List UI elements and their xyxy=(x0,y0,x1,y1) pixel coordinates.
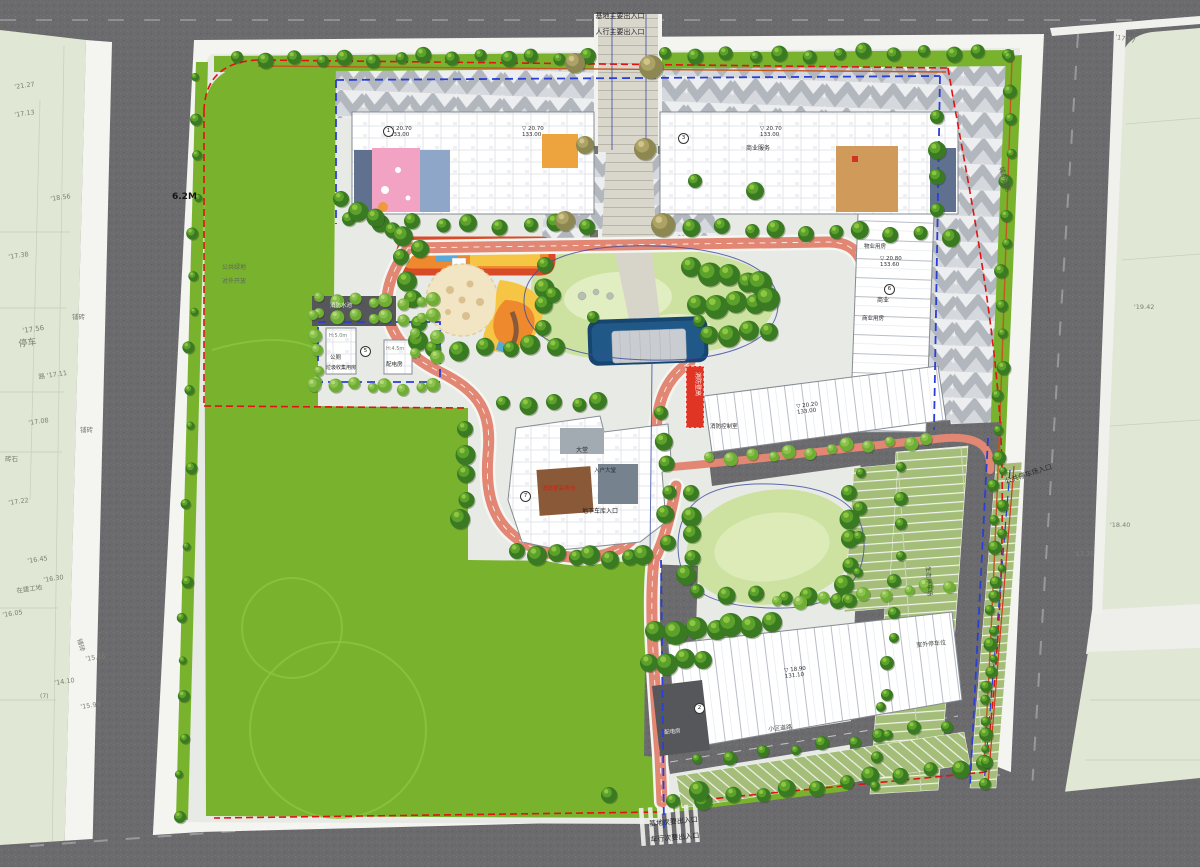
site-plan: 基地主要出入口 人行主要出入口 基地次要出入口 车行次要出入口 公共停车场入口 … xyxy=(0,0,1200,867)
building-north-east xyxy=(660,112,958,214)
building-substation xyxy=(384,340,412,374)
room-red-dot xyxy=(852,156,858,162)
plaza-paving-northwest xyxy=(336,66,596,118)
room-kindergarten-pink xyxy=(372,148,420,212)
axis-paving xyxy=(598,14,658,152)
site-area xyxy=(176,14,1022,824)
axis-edge-west xyxy=(594,14,598,152)
room-kindergarten-blue xyxy=(420,150,450,212)
room-tan xyxy=(836,146,898,212)
room-orange xyxy=(542,134,578,168)
power-room-block xyxy=(652,680,710,756)
roof-gray-blue xyxy=(598,464,638,504)
roof-gray xyxy=(560,428,604,454)
path-east xyxy=(1086,604,1200,654)
axis-plaza-paving xyxy=(602,152,656,238)
site-plan-canvas xyxy=(0,0,1200,867)
fire-truck-pad xyxy=(686,366,704,428)
pond-deck xyxy=(612,329,687,364)
roof-brown xyxy=(536,466,593,516)
building-toilet xyxy=(326,328,356,374)
